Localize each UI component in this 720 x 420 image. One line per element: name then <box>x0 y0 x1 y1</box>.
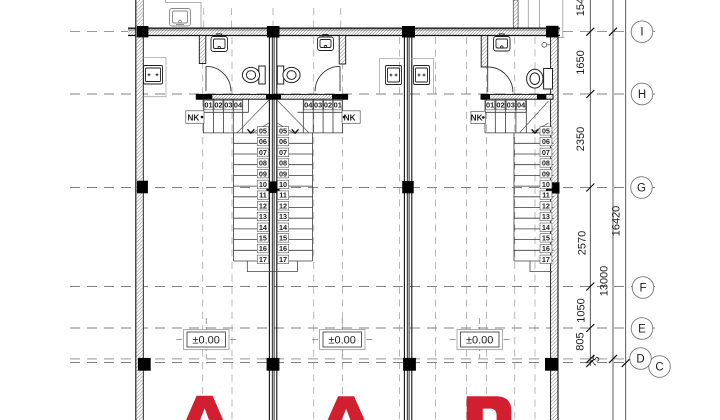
svg-text:805: 805 <box>575 332 587 350</box>
svg-text:10: 10 <box>259 180 267 189</box>
svg-text:13: 13 <box>542 212 550 221</box>
svg-text:10: 10 <box>279 180 287 189</box>
svg-text:13: 13 <box>279 212 287 221</box>
svg-text:07: 07 <box>542 148 550 157</box>
svg-text:05: 05 <box>279 127 287 136</box>
svg-text:13000: 13000 <box>599 266 611 297</box>
svg-text:2570: 2570 <box>577 231 589 255</box>
svg-text:±0.00: ±0.00 <box>192 335 219 347</box>
svg-text:15: 15 <box>542 234 550 243</box>
svg-text:F: F <box>639 283 646 295</box>
svg-text:07: 07 <box>279 148 287 157</box>
svg-text:09: 09 <box>259 169 267 178</box>
svg-text:09: 09 <box>542 169 550 178</box>
svg-text:17: 17 <box>542 255 550 264</box>
svg-text:11: 11 <box>279 191 287 200</box>
svg-text:12: 12 <box>259 201 267 210</box>
svg-text:03: 03 <box>507 101 515 110</box>
svg-text:E: E <box>638 324 646 336</box>
svg-text:12: 12 <box>279 201 287 210</box>
svg-text:15: 15 <box>279 234 287 243</box>
svg-text:14: 14 <box>259 223 268 232</box>
svg-text:08: 08 <box>542 159 550 168</box>
svg-text:17: 17 <box>279 255 287 264</box>
svg-text:16: 16 <box>542 244 550 253</box>
svg-text:12: 12 <box>542 201 550 210</box>
svg-text:1050: 1050 <box>576 298 588 322</box>
svg-text:15: 15 <box>259 234 267 243</box>
svg-text:04: 04 <box>517 101 526 110</box>
svg-text:14: 14 <box>542 223 551 232</box>
svg-text:02: 02 <box>214 101 222 110</box>
svg-text:05: 05 <box>542 127 550 136</box>
svg-text:1540: 1540 <box>575 0 587 16</box>
svg-text:I: I <box>640 27 643 39</box>
svg-text:G: G <box>637 183 646 195</box>
svg-text:05: 05 <box>259 127 267 136</box>
svg-text:2350: 2350 <box>575 127 587 151</box>
svg-text:06: 06 <box>542 137 550 146</box>
svg-text:17: 17 <box>259 255 267 264</box>
svg-text:±0.00: ±0.00 <box>328 335 355 347</box>
svg-text:±0.00: ±0.00 <box>466 335 493 347</box>
svg-text:11: 11 <box>542 191 550 200</box>
svg-text:03: 03 <box>224 101 232 110</box>
svg-text:08: 08 <box>259 159 267 168</box>
svg-text:10: 10 <box>542 180 550 189</box>
svg-text:NK: NK <box>344 113 356 122</box>
svg-text:09: 09 <box>279 169 287 178</box>
svg-text:11: 11 <box>259 191 267 200</box>
svg-text:07: 07 <box>259 148 267 157</box>
svg-text:04: 04 <box>304 101 313 110</box>
svg-text:06: 06 <box>259 137 267 146</box>
svg-text:01: 01 <box>204 101 212 110</box>
svg-text:14: 14 <box>279 223 288 232</box>
svg-text:16: 16 <box>279 244 287 253</box>
svg-text:08: 08 <box>279 159 287 168</box>
svg-text:02: 02 <box>324 101 332 110</box>
svg-text:13: 13 <box>259 212 267 221</box>
svg-text:16: 16 <box>259 244 267 253</box>
svg-text:01: 01 <box>486 101 494 110</box>
svg-text:16420: 16420 <box>611 206 623 237</box>
svg-text:03: 03 <box>314 101 322 110</box>
svg-text:01: 01 <box>334 101 342 110</box>
svg-text:NK: NK <box>471 114 483 123</box>
svg-text:1650: 1650 <box>575 50 587 74</box>
svg-text:02: 02 <box>496 101 504 110</box>
svg-text:NK: NK <box>187 113 199 122</box>
svg-text:D: D <box>636 354 644 366</box>
svg-text:C: C <box>655 362 663 374</box>
svg-text:04: 04 <box>234 101 243 110</box>
svg-text:H: H <box>638 89 646 101</box>
svg-text:06: 06 <box>279 137 287 146</box>
